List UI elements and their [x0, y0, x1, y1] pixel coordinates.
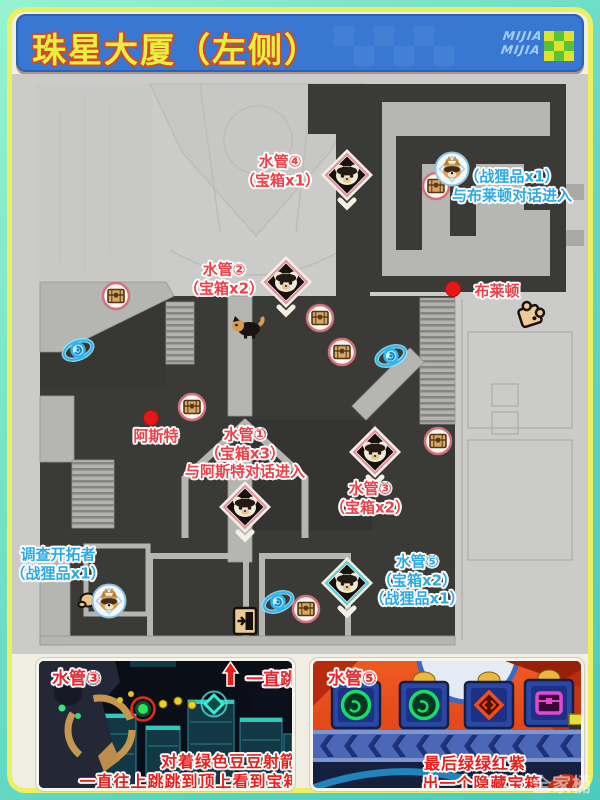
banner-checker [414, 26, 434, 46]
label-pipe3: 水管③（宝箱x2） [330, 480, 410, 517]
label-aster: 阿斯特 [133, 427, 178, 446]
side-rooms [462, 300, 572, 640]
page-title: 珠星大厦（左侧） [32, 23, 320, 72]
green-symbol [411, 692, 438, 719]
label-pipe1: 水管①（宝箱x3）与阿斯特对话进入 [185, 425, 305, 481]
label-pipe4: 水管④（宝箱x1） [240, 153, 320, 190]
banner-checker [394, 46, 414, 66]
banner-checker [374, 26, 394, 46]
logo-line: MIJIA [500, 43, 542, 57]
treasure-chest-icon [293, 596, 319, 622]
banner-checker [354, 46, 374, 66]
green-symbol [343, 692, 370, 719]
logo-line: MIJIA [502, 29, 544, 43]
label-loot-top: （战狸品x1）与布莱顿对话进入 [452, 168, 572, 205]
label-pipe5: 水管⑤（宝箱x2）（战狸品x1） [369, 552, 464, 608]
npc-dot-aster [144, 411, 159, 426]
treasure-chest-icon [425, 428, 451, 454]
treasure-chest-icon [103, 283, 129, 309]
watermark: 全家桶 [516, 770, 592, 797]
mijia-logo: MIJIA MIJIA [500, 29, 544, 57]
treasure-chest-icon [307, 305, 333, 331]
yellow-item [569, 714, 581, 725]
screenshot-panel-pipe3: 水管③ 一直跳 对着绿色豆豆射箭 一直往上跳跳到顶上看到宝箱 [36, 658, 295, 791]
label-pipe2: 水管②（宝箱x2） [184, 261, 264, 298]
pixel-flower-icon [544, 31, 574, 61]
puzzle-piece-icon [516, 298, 547, 328]
panel-left-title: 水管③ [52, 664, 100, 689]
treasure-chest-icon [329, 339, 355, 365]
treasure-chest-icon [179, 394, 205, 420]
panel-left-jump-label: 一直跳 [246, 665, 295, 690]
door-icon [234, 608, 256, 634]
panel-left-caption2: 一直往上跳跳到顶上看到宝箱 [79, 768, 295, 791]
banner-checker [334, 26, 354, 46]
panel-right-title: 水管⑤ [328, 664, 376, 689]
title-banner: 珠星大厦（左侧） MIJIA MIJIA [16, 14, 584, 72]
guide-infographic: 珠星大厦（左侧） MIJIA MIJIA [0, 0, 600, 800]
banner-checker [434, 46, 454, 66]
npc-dot-brayton [446, 282, 461, 297]
raccoon-loot-icon [93, 585, 126, 618]
label-brayton: 布莱顿 [474, 282, 519, 301]
label-investigate: 调查开拓者（战狸品x1） [10, 546, 105, 583]
